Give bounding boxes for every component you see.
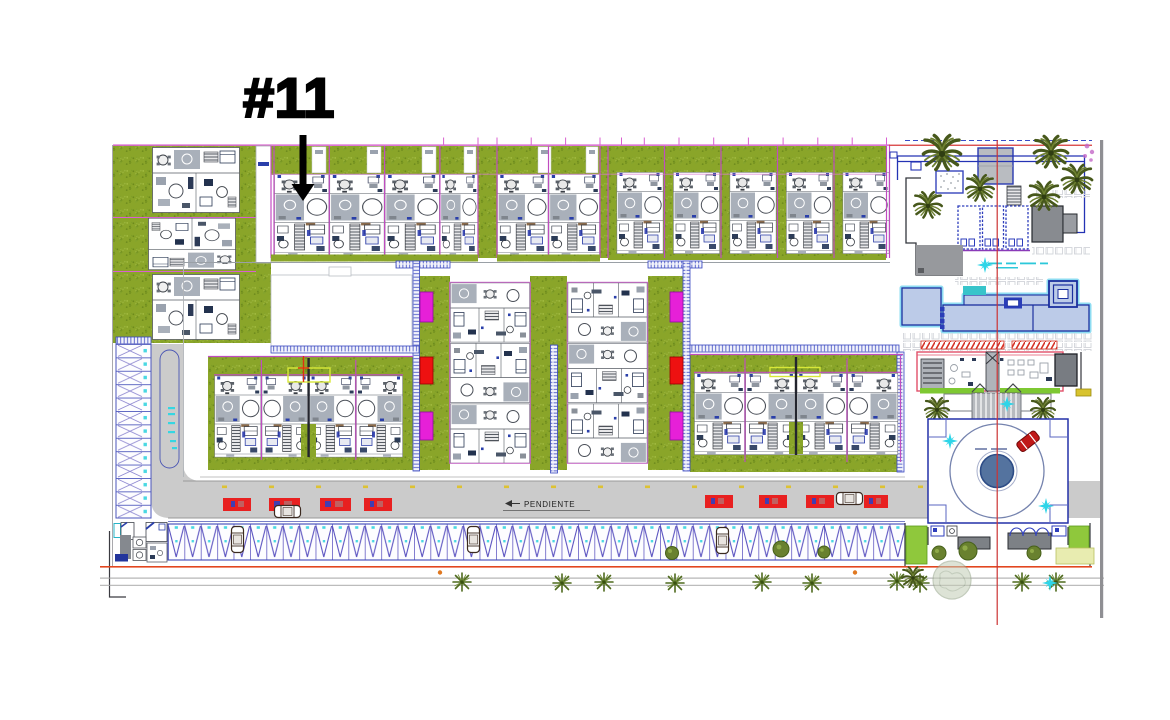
svg-text:#11: #11 [243,66,335,129]
svg-text:PENDIENTE: PENDIENTE [524,500,575,509]
